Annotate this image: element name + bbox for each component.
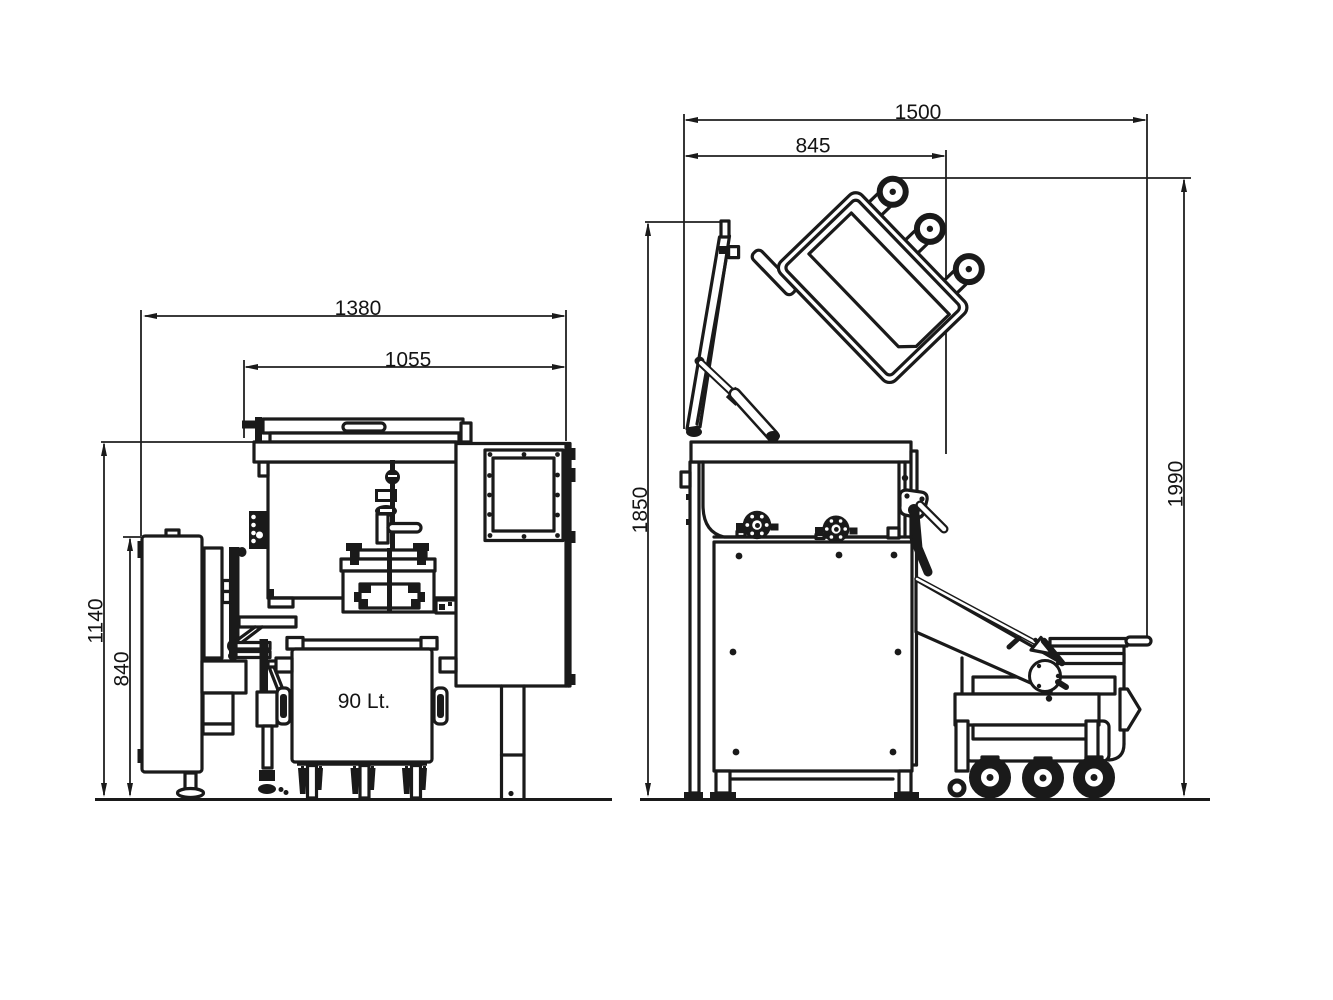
svg-text:1055: 1055 <box>385 349 432 372</box>
svg-text:840: 840 <box>111 651 134 686</box>
svg-text:1380: 1380 <box>335 297 382 320</box>
svg-text:1140: 1140 <box>85 598 108 643</box>
svg-text:845: 845 <box>795 135 830 158</box>
svg-text:1990: 1990 <box>1165 461 1188 508</box>
svg-text:1850: 1850 <box>629 487 652 534</box>
svg-text:90 Lt.: 90 Lt. <box>338 690 391 713</box>
svg-text:1500: 1500 <box>895 101 942 124</box>
